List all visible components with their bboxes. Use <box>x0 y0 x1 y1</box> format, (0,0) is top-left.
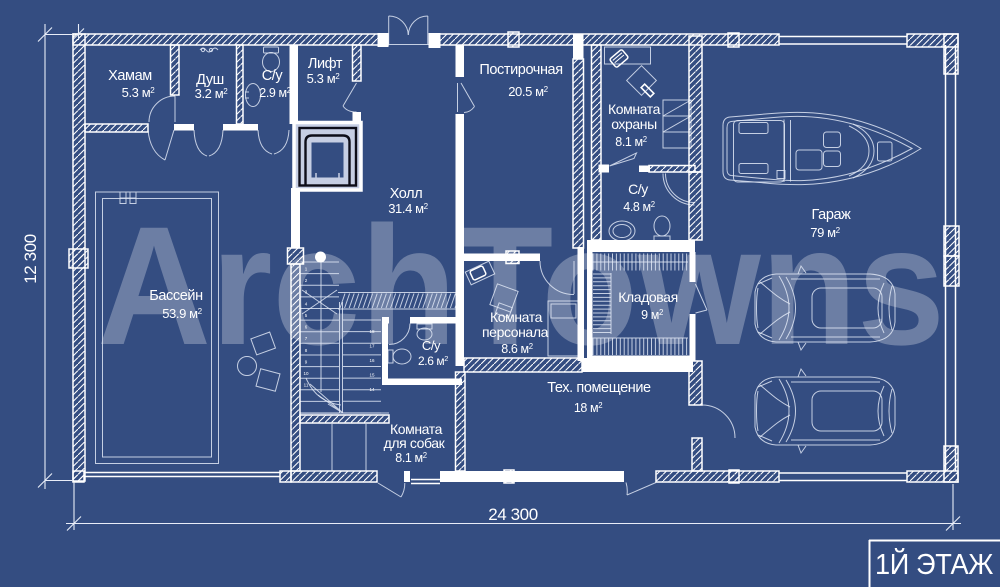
svg-text:31.4 м2: 31.4 м2 <box>388 201 428 216</box>
svg-text:Комната: Комната <box>608 101 661 117</box>
svg-text:Бассейн: Бассейн <box>149 288 202 304</box>
svg-text:12 300: 12 300 <box>21 234 40 284</box>
svg-text:18 м2: 18 м2 <box>574 401 602 415</box>
svg-text:15: 15 <box>369 373 375 378</box>
svg-text:8.6 м2: 8.6 м2 <box>501 342 532 356</box>
svg-text:24 300: 24 300 <box>488 505 538 524</box>
svg-text:Тех. помещение: Тех. помещение <box>547 380 651 396</box>
svg-text:персонала: персонала <box>482 324 549 340</box>
svg-text:10: 10 <box>303 371 309 376</box>
svg-text:Холл: Холл <box>390 186 423 202</box>
svg-text:2.6 м2: 2.6 м2 <box>418 354 448 368</box>
svg-text:Комната: Комната <box>490 309 543 325</box>
svg-text:Гараж: Гараж <box>812 207 852 223</box>
svg-text:16: 16 <box>369 358 375 363</box>
svg-text:20.5 м2: 20.5 м2 <box>508 84 548 99</box>
svg-text:Постирочная: Постирочная <box>479 62 562 78</box>
svg-text:4.8 м2: 4.8 м2 <box>623 200 654 214</box>
svg-text:3.2 м2: 3.2 м2 <box>195 86 229 101</box>
svg-text:С/у: С/у <box>262 68 284 84</box>
svg-text:17: 17 <box>369 344 375 349</box>
svg-text:Лифт: Лифт <box>308 56 343 72</box>
svg-text:С/у: С/у <box>422 338 441 353</box>
svg-text:11: 11 <box>304 383 309 388</box>
svg-text:1Й ЭТАЖ: 1Й ЭТАЖ <box>875 547 994 581</box>
svg-text:охраны: охраны <box>611 116 657 132</box>
svg-text:14: 14 <box>369 387 375 392</box>
svg-text:2.9 м2: 2.9 м2 <box>259 86 290 100</box>
svg-text:53.9 м2: 53.9 м2 <box>162 306 202 321</box>
svg-text:5.3 м2: 5.3 м2 <box>122 85 156 100</box>
svg-text:Хамам: Хамам <box>108 68 152 84</box>
svg-text:С/у: С/у <box>628 181 648 197</box>
svg-text:Кладовая: Кладовая <box>618 289 678 305</box>
svg-text:8.1 м2: 8.1 м2 <box>395 451 426 465</box>
svg-text:18: 18 <box>369 329 375 334</box>
svg-text:8.1 м2: 8.1 м2 <box>615 135 646 149</box>
svg-text:5.3 м2: 5.3 м2 <box>307 71 341 86</box>
svg-text:для собак: для собак <box>384 435 446 451</box>
